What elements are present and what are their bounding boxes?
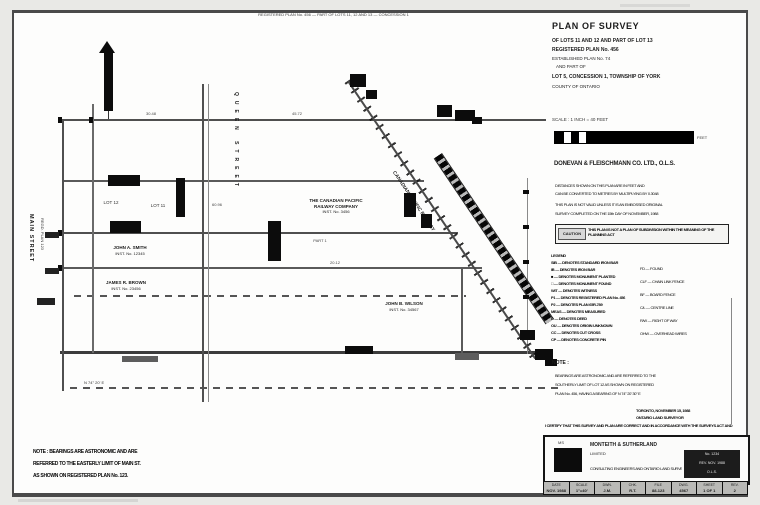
survey-mark [366, 90, 377, 99]
survey-mark [404, 193, 416, 217]
field-value: R.T. [621, 488, 646, 493]
legend-right-column: FD — FOUND CLF — CHAIN LINK FENCE BF — B… [640, 262, 738, 340]
bearing-note-title: NOTE : [552, 360, 569, 366]
field-value: 1"=40' [570, 488, 595, 493]
field-value: NOV. 1988 [544, 488, 569, 493]
scale-text: SCALE : 1 INCH = 40 FEET [552, 117, 608, 123]
title-block-firm-name: MONTEITH & SUTHERLAND [590, 442, 657, 448]
scale-unit-label: FEET [697, 135, 707, 140]
bearing-note-line: SOUTHERLY LIMIT OF LOT 12 AS SHOWN ON RE… [555, 382, 654, 387]
north-arrow-icon [99, 41, 115, 53]
plan-description-line: LOT 5, CONCESSION 1, TOWNSHIP OF YORK [552, 74, 660, 80]
stamp-line: No. 1234 [684, 450, 740, 459]
field-value: J.M. [595, 488, 620, 493]
field-value: 88-123 [646, 488, 671, 493]
metric-note-line: THIS PLAN IS NOT VALID UNLESS IT IS AN E… [555, 202, 663, 207]
surveyor-title: ONTARIO LAND SURVEYOR [636, 414, 716, 421]
field-cell: CHK. R.T. [621, 482, 647, 494]
plan-description-line: ESTABLISHED PLAN No. 74 [552, 56, 610, 62]
street-name-centre: QUEEN STREET [233, 92, 239, 332]
field-value: 4567 [672, 488, 697, 493]
monument-tick [523, 225, 529, 229]
owner-instrument: INST. No. 34567 [358, 307, 450, 312]
survey-mark [350, 74, 366, 87]
note-line: NOTE : BEARINGS ARE ASTRONOMIC AND ARE [33, 446, 173, 458]
caution-label: CAUTION [558, 228, 586, 240]
building-footprint [108, 175, 140, 186]
plan-title: PLAN OF SURVEY [552, 21, 639, 32]
legend-item: D — DENOTES DEED [551, 315, 639, 322]
survey-mark [421, 214, 432, 228]
monument-tick [45, 232, 59, 238]
part-label: PART 1 [303, 238, 337, 243]
owner-label: JOHN A. SMITH INST. No. 12345 [88, 245, 172, 256]
survey-mark [437, 105, 452, 117]
legend-item: CLF — CHAIN LINK FENCE [640, 275, 738, 288]
panel-rule [731, 298, 732, 424]
scan-smudge-top [620, 4, 690, 7]
survey-mark [345, 346, 373, 354]
stamp-line: REV. NOV. 1988 [684, 459, 740, 468]
metric-note-line: DISTANCES SHOWN ON THIS PLAN ARE IN FEET… [555, 183, 645, 188]
monument-tick [58, 117, 62, 123]
scanned-survey-plan: REGISTERED PLAN No. 456 — PART OF LOTS 1… [0, 0, 760, 505]
bearing-note-line: BEARINGS ARE ASTRONOMIC AND ARE REFERRED… [555, 373, 656, 378]
plan-description-line: AND PART OF [556, 64, 586, 70]
monument-tick [45, 268, 59, 274]
legend-item: P2 — DENOTES PLAN 65R-789 [551, 301, 639, 308]
monument-tick [523, 260, 529, 264]
legend-item: MEAS — DENOTES MEASURED [551, 308, 639, 315]
lot-boundary-line-a [92, 104, 94, 353]
field-cell: SHEET 1 OF 1 [697, 482, 723, 494]
dimension-label: 60.96 [212, 202, 222, 207]
legend-item: CC — DENOTES CUT CROSS [551, 329, 639, 336]
title-block-fields: DATE NOV. 1988 SCALE 1"=40' DWN. J.M. CH… [543, 481, 748, 495]
field-value: 1 OF 1 [697, 488, 722, 493]
surveyor-firm-line: DONEVAN & FLEISCHMANN CO. LTD., O.L.S. [554, 161, 675, 168]
legend-item: IB — DENOTES IRON BAR [551, 266, 639, 273]
owner-label: JAMES R. BROWN INST. No. 23456 [80, 280, 172, 291]
east-boundary-line [527, 178, 528, 354]
drawing-top-note: REGISTERED PLAN No. 456 — PART OF LOTS 1… [236, 12, 431, 17]
monument-tick [523, 190, 529, 194]
legend-item: CP — DENOTES CONCRETE PIN [551, 336, 639, 343]
metric-note-line: SURVEY COMPLETED ON THE 15th DAY OF NOVE… [555, 211, 658, 216]
legend-item: FD — FOUND [640, 262, 738, 275]
building-footprint [176, 178, 185, 217]
stamp-line: O.L.S. [684, 468, 740, 477]
owner-instrument: INST. No. 12345 [88, 251, 172, 256]
legend-item: R/W — RIGHT OF WAY [640, 314, 738, 327]
street-centre-line-west [202, 84, 204, 402]
owner-instrument: INST. No. 23456 [80, 286, 172, 291]
legend-item: OHW — OVERHEAD WIRES [640, 327, 738, 340]
legend-item: OU — DENOTES ORIGIN UNKNOWN [551, 322, 639, 329]
field-cell: DWN. J.M. [595, 482, 621, 494]
title-block-firm-desc: CONSULTING ENGINEERS AND ONTARIO LAND SU… [590, 466, 682, 471]
dimension-label: 45.72 [292, 111, 302, 116]
field-cell: REV. 2 [723, 482, 748, 494]
legend-item: □ — DENOTES MONUMENT FOUND [551, 280, 639, 287]
lot-line-dashed [74, 295, 466, 297]
legend-item: C/L — CENTRE LINE [640, 301, 738, 314]
scale-bar [554, 131, 694, 144]
legend-title: LEGEND [551, 252, 639, 259]
bearing-label: N 74° 20' E [84, 380, 104, 385]
survey-mark [122, 356, 158, 362]
legend-item: WIT — DENOTES WITNESS [551, 287, 639, 294]
field-cell: SCALE 1"=40' [570, 482, 596, 494]
survey-mark [455, 353, 479, 360]
field-cell: FILE 88-123 [646, 482, 672, 494]
certificate-signature-block: TORONTO, NOVEMBER 15, 1988 ONTARIO LAND … [636, 407, 716, 421]
caution-box: CAUTION THIS PLAN IS NOT A PLAN OF SUBDI… [555, 224, 729, 244]
legend-item: ■ — DENOTES MONUMENT PLANTED [551, 273, 639, 280]
monument-tick [523, 295, 529, 299]
note-line: REFERRED TO THE EASTERLY LIMIT OF MAIN S… [33, 458, 173, 470]
field-cell: DATE NOV. 1988 [544, 482, 570, 494]
dimension-label: 30.48 [146, 111, 156, 116]
plan-description-line: OF LOTS 11 AND 12 AND PART OF LOT 13 [552, 38, 653, 44]
owner-label: THE CANADIAN PACIFIC RAILWAY COMPANY INS… [280, 198, 392, 214]
limit-line-dashed-south [70, 387, 560, 389]
survey-mark [472, 117, 482, 124]
drawing-notes-block: NOTE : BEARINGS ARE ASTRONOMIC AND ARE R… [33, 446, 173, 482]
company-logo [554, 448, 582, 472]
lot-number-label: LOT 11 [138, 203, 178, 209]
caution-text: THIS PLAN IS NOT A PLAN OF SUBDIVISION W… [588, 227, 726, 241]
certificate-bar: I CERTIFY THAT THIS SURVEY AND PLAN ARE … [545, 423, 733, 428]
field-cell: DWG. 4567 [672, 482, 698, 494]
lot-number-label: LOT 12 [88, 200, 134, 206]
survey-mark [520, 330, 535, 340]
street-name-west-sub: REGD. PLAN 123 [40, 218, 45, 310]
certificate-date: TORONTO, NOVEMBER 15, 1988 [636, 407, 716, 414]
street-centre-line-east [208, 84, 209, 402]
scan-smudge-bottom [18, 499, 138, 502]
metric-note-line: CAN BE CONVERTED TO METRES BY MULTIPLYIN… [555, 191, 658, 196]
monument-tick [89, 117, 93, 123]
legend: LEGEND SIB — DENOTES STANDARD IRON BAR I… [551, 252, 639, 343]
street-name-west: MAIN STREET [27, 214, 34, 314]
owner-instrument: INST. No. 3456 [280, 209, 392, 214]
plan-description-line: COUNTY OF ONTARIO [552, 84, 600, 90]
north-arrow-shaft [104, 53, 113, 111]
plan-description-line: REGISTERED PLAN No. 456 [552, 47, 619, 53]
field-value: 2 [723, 488, 748, 493]
owner-label: JOHN B. WILSON INST. No. 34567 [358, 301, 450, 312]
dimension-label: 20.12 [330, 260, 340, 265]
building-footprint [110, 221, 141, 233]
legend-item: SIB — DENOTES STANDARD IRON BAR [551, 259, 639, 266]
title-block-logo-text: MS [558, 440, 564, 445]
legend-item: BF — BOARD FENCE [640, 288, 738, 301]
note-line: AS SHOWN ON REGISTERED PLAN No. 123. [33, 470, 173, 482]
legend-item: P1 — DENOTES REGISTERED PLAN No. 456 [551, 294, 639, 301]
title-block-firm-sub: LIMITED [590, 451, 606, 456]
building-footprint [268, 221, 281, 261]
lot-line-3 [62, 267, 482, 269]
bearing-note-line: PLAN No. 456, HAVING A BEARING OF N 74° … [555, 391, 641, 396]
surveyor-stamp: No. 1234 REV. NOV. 1988 O.L.S. [684, 450, 740, 478]
west-boundary-line [62, 119, 64, 391]
